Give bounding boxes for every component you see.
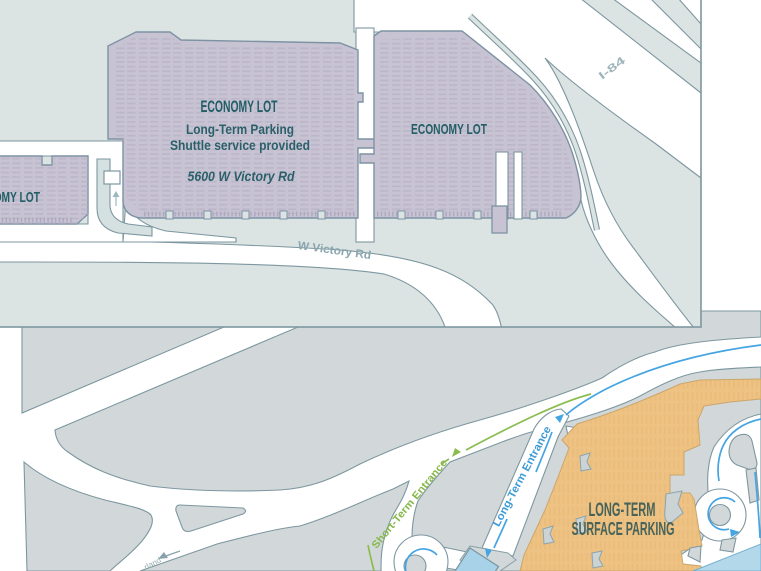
svg-text:Shuttle service provided: Shuttle service provided xyxy=(170,137,310,153)
svg-text:ECONOMY LOT: ECONOMY LOT xyxy=(201,97,278,116)
svg-text:ECONOMY LOT: ECONOMY LOT xyxy=(0,189,40,206)
svg-text:ECONOMY LOT: ECONOMY LOT xyxy=(411,121,487,138)
svg-text:SURFACE PARKING: SURFACE PARKING xyxy=(572,519,675,539)
svg-text:LONG-TERM: LONG-TERM xyxy=(589,500,656,521)
svg-text:Long-Term Parking: Long-Term Parking xyxy=(186,121,294,137)
svg-text:5600 W Victory Rd: 5600 W Victory Rd xyxy=(188,168,295,184)
